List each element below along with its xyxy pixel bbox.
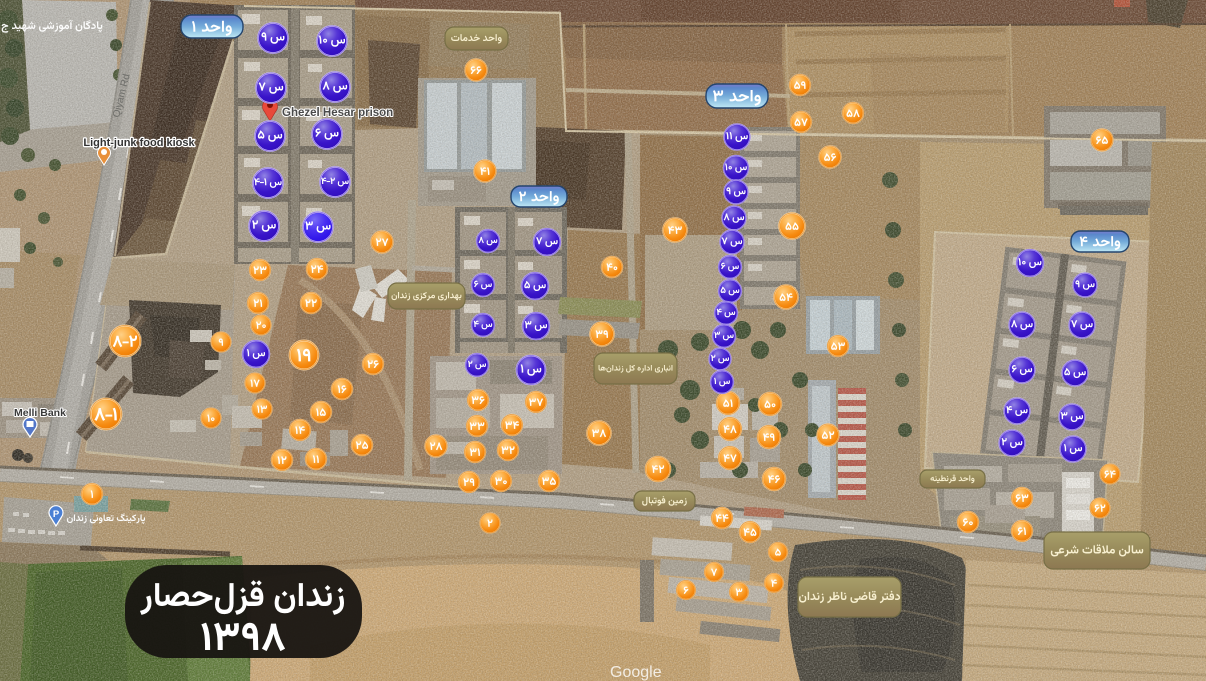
svg-text:Ghezel Hesar prison: Ghezel Hesar prison [282,107,393,119]
svg-text:Google: Google [610,664,662,681]
svg-text:P: P [53,509,60,520]
svg-text:Melli Bank: Melli Bank [14,407,66,419]
